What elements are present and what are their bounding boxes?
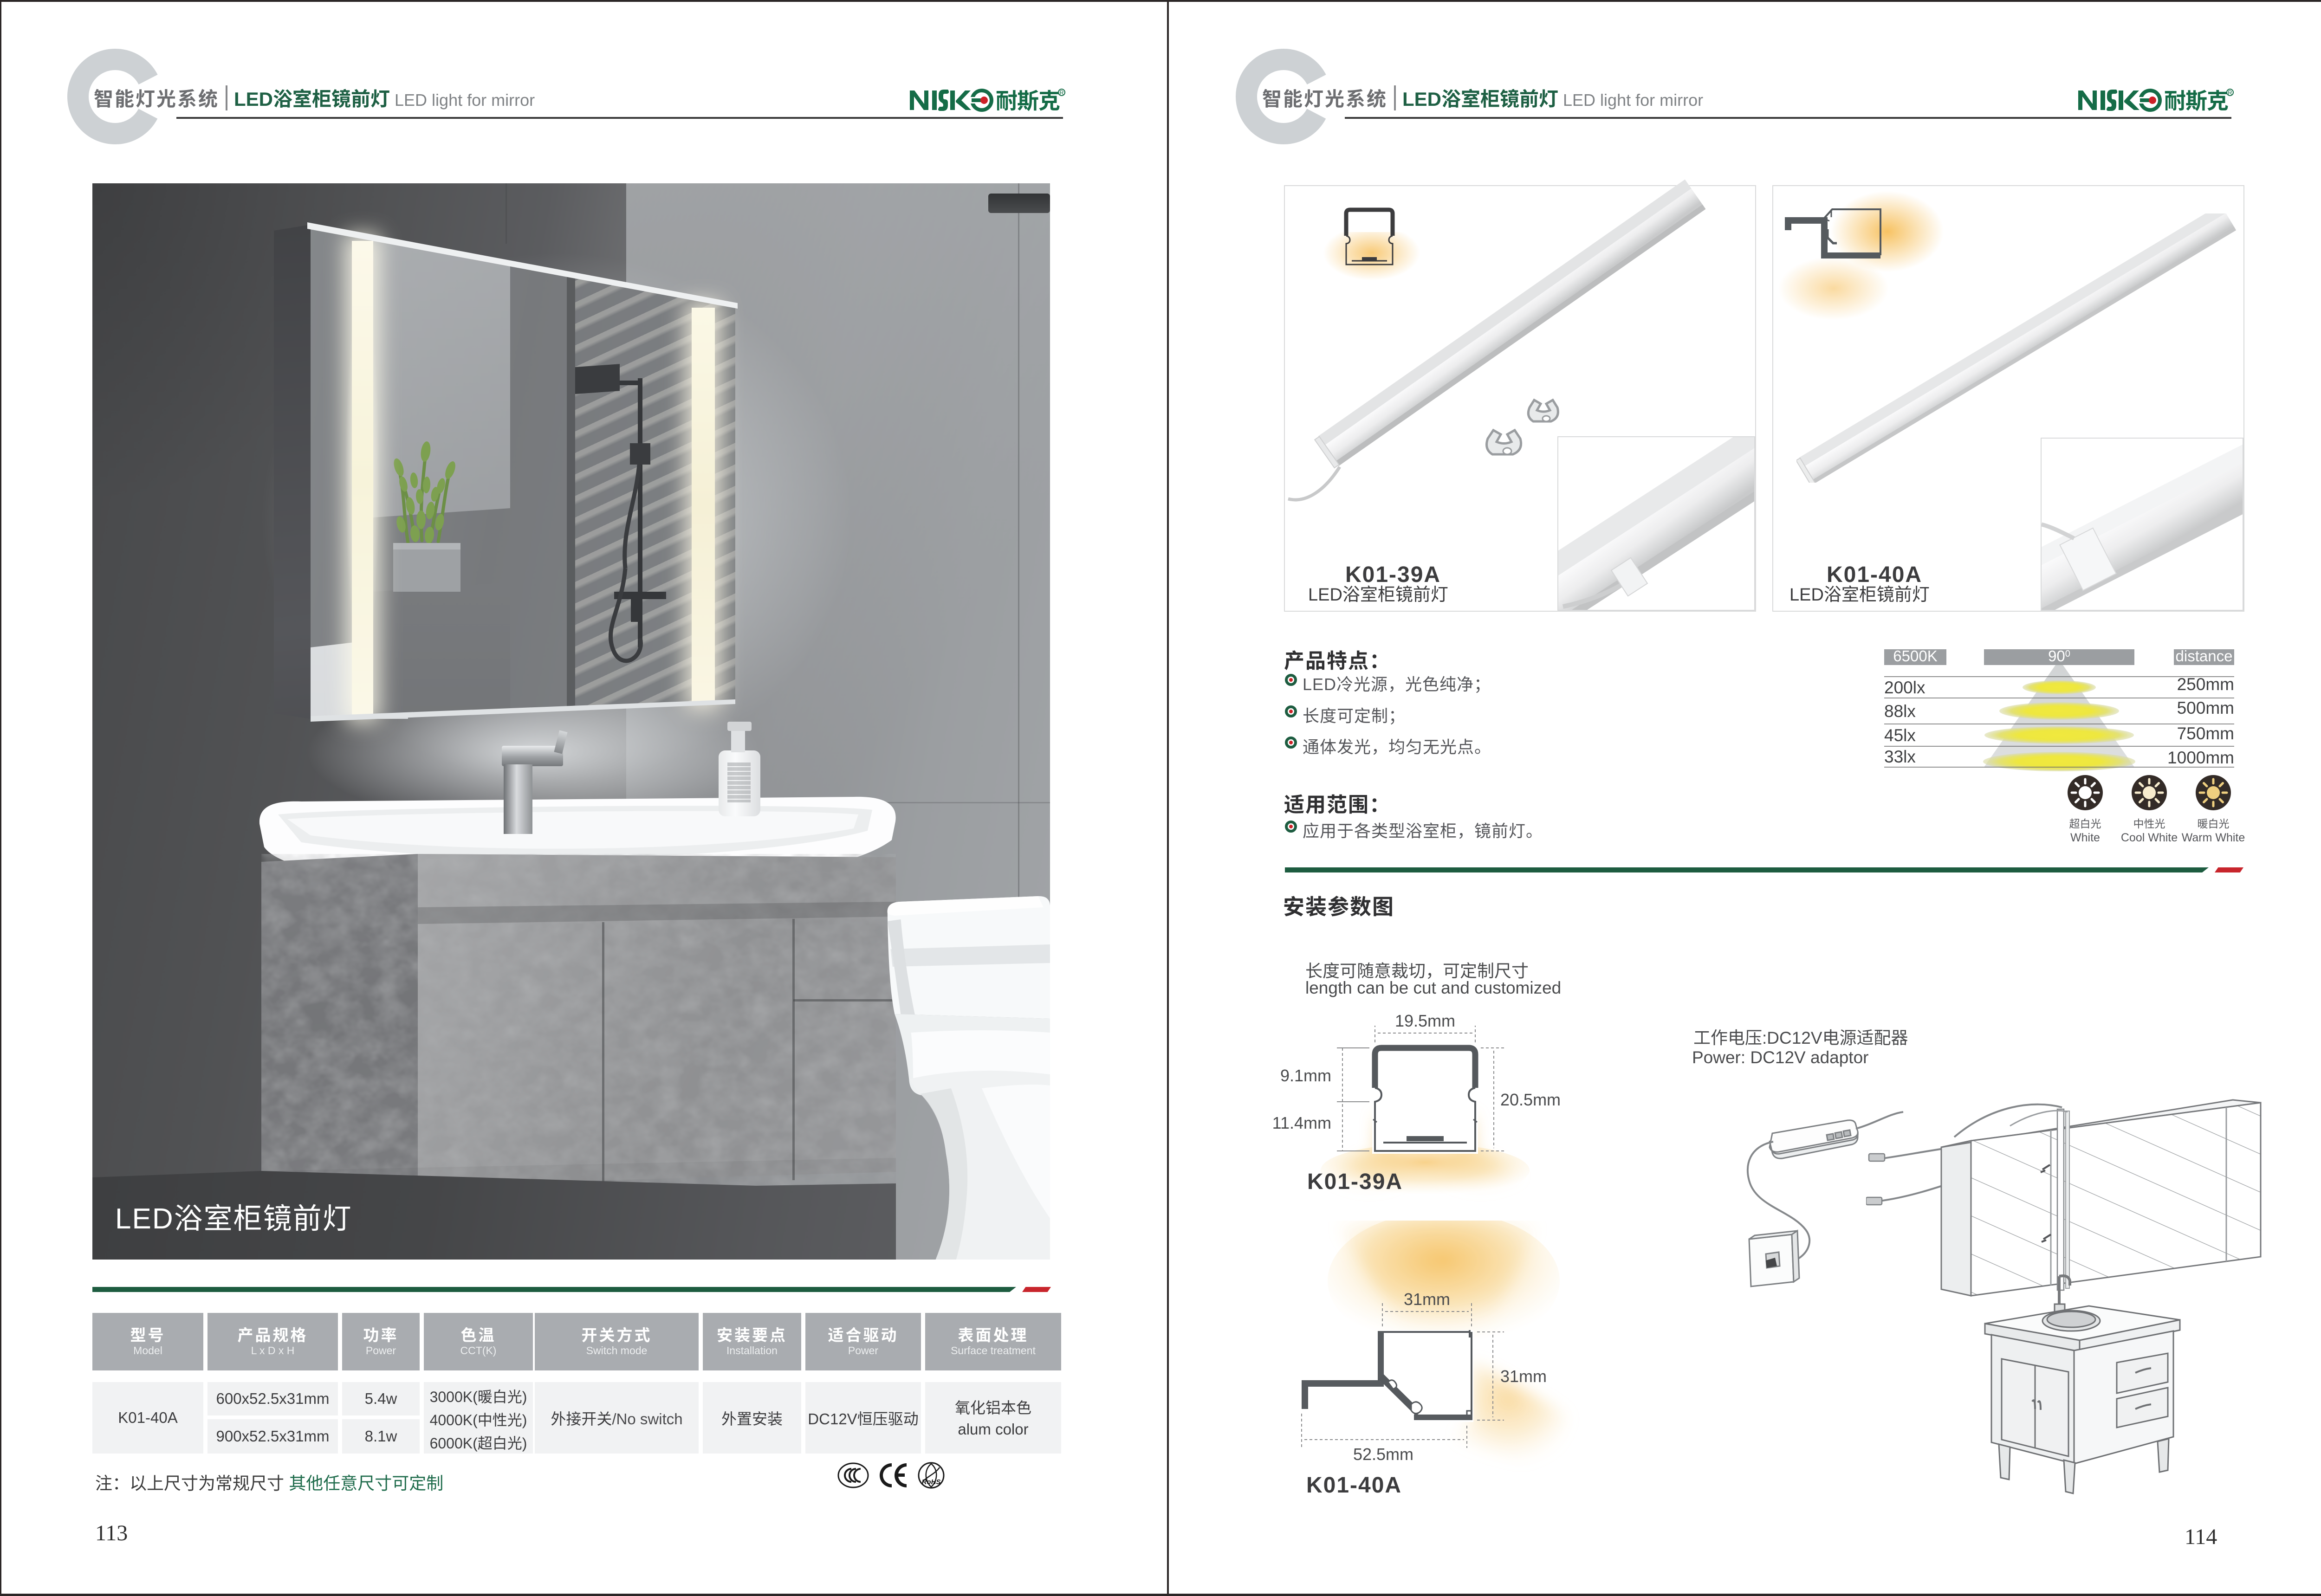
svg-text:20.5mm: 20.5mm: [1500, 1090, 1561, 1109]
svg-text:K01-39A: K01-39A: [1307, 1170, 1403, 1194]
svg-text:9.1mm: 9.1mm: [1280, 1066, 1331, 1085]
svg-text:K01-40A: K01-40A: [1306, 1473, 1402, 1498]
svg-text:52.5mm: 52.5mm: [1353, 1445, 1413, 1464]
svg-text:31mm: 31mm: [1404, 1290, 1450, 1309]
svg-text:19.5mm: 19.5mm: [1395, 1011, 1455, 1030]
svg-text:11.4mm: 11.4mm: [1272, 1113, 1331, 1132]
svg-text:31mm: 31mm: [1500, 1367, 1547, 1386]
